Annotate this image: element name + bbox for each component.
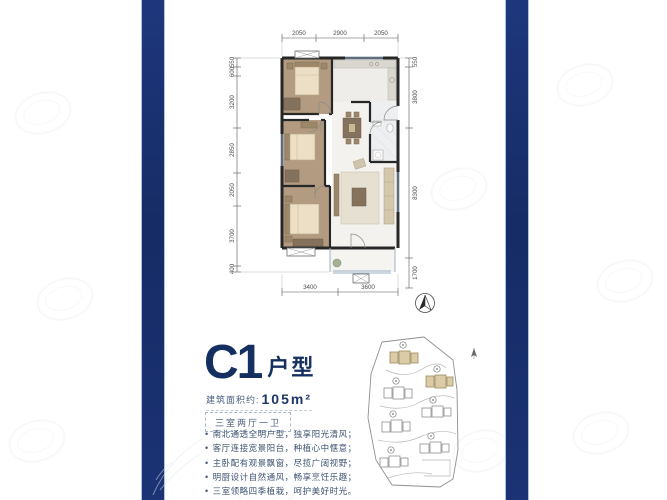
feature-item: 三室领略四季植栽，呵护美好时光。 <box>205 484 357 498</box>
svg-text:3400: 3400 <box>303 284 317 291</box>
watermark <box>9 85 76 141</box>
svg-text:2900: 2900 <box>333 30 347 37</box>
svg-text:3700: 3700 <box>229 229 236 243</box>
site-buildings <box>380 378 451 467</box>
svg-text:3600: 3600 <box>361 284 375 291</box>
watermark <box>3 413 70 469</box>
svg-text:1700: 1700 <box>412 266 419 280</box>
unit-type-label: 户型 <box>267 350 315 382</box>
floor-plan: 2050 2900 2050 550 600 3200 2850 2050 37… <box>225 22 440 322</box>
site-north-arrow-icon <box>471 348 477 359</box>
area-label: 建筑面积约: <box>206 393 260 406</box>
watermark <box>551 57 618 113</box>
svg-text:600: 600 <box>229 66 236 77</box>
leaf-decoration <box>148 420 218 500</box>
svg-text:550: 550 <box>412 56 419 67</box>
svg-text:3200: 3200 <box>229 95 236 109</box>
unit-title: C1 户型 <box>204 341 315 384</box>
svg-text:2050: 2050 <box>292 30 306 37</box>
feature-item: 客厅连接宽景阳台，种植心中惬意； <box>205 441 357 455</box>
svg-text:2050: 2050 <box>374 30 388 37</box>
right-navy-band <box>505 0 529 500</box>
north-arrow-icon <box>416 294 435 313</box>
svg-text:8300: 8300 <box>412 186 419 200</box>
svg-text:3800: 3800 <box>412 90 419 104</box>
svg-text:2050: 2050 <box>229 183 236 197</box>
svg-text:2850: 2850 <box>229 143 236 157</box>
feature-list: 南北通透全明户型，独享阳光清风； 客厅连接宽景阳台，种植心中惬意； 主卧配有观景… <box>205 427 357 498</box>
unit-code: C1 <box>204 341 261 384</box>
watermark <box>31 271 98 327</box>
site-plan <box>362 332 502 498</box>
feature-item: 明厨设计自然通风，畅享烹饪乐趣； <box>205 470 357 484</box>
balcony-plant <box>333 259 341 267</box>
feature-item: 主卧配有观景飘窗，尽揽广阔视野； <box>205 456 357 470</box>
watermark <box>591 253 658 309</box>
poster-canvas: 2050 2900 2050 550 600 3200 2850 2050 37… <box>0 0 667 500</box>
feature-item: 南北通透全明户型，独享阳光清风； <box>205 427 357 441</box>
watermark <box>567 405 634 461</box>
area-line: 建筑面积约: 105m² <box>206 391 312 411</box>
svg-text:400: 400 <box>229 263 236 274</box>
svg-text:550: 550 <box>229 56 236 67</box>
area-value: 105m² <box>262 391 312 407</box>
